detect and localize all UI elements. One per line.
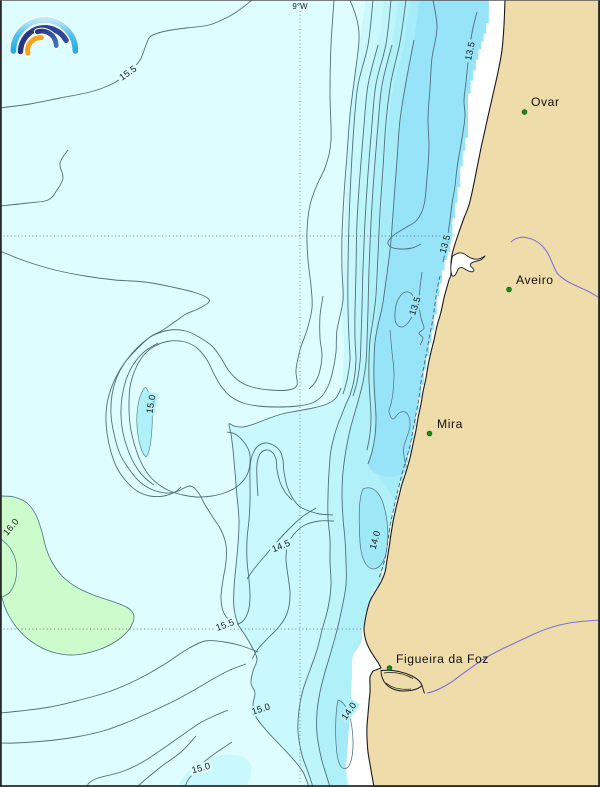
- svg-text:Ovar: Ovar: [531, 95, 560, 109]
- svg-text:Aveiro: Aveiro: [516, 273, 554, 287]
- svg-text:9°W: 9°W: [292, 2, 308, 11]
- svg-text:Figueira da Foz: Figueira da Foz: [396, 652, 489, 666]
- svg-text:Mira: Mira: [437, 417, 463, 431]
